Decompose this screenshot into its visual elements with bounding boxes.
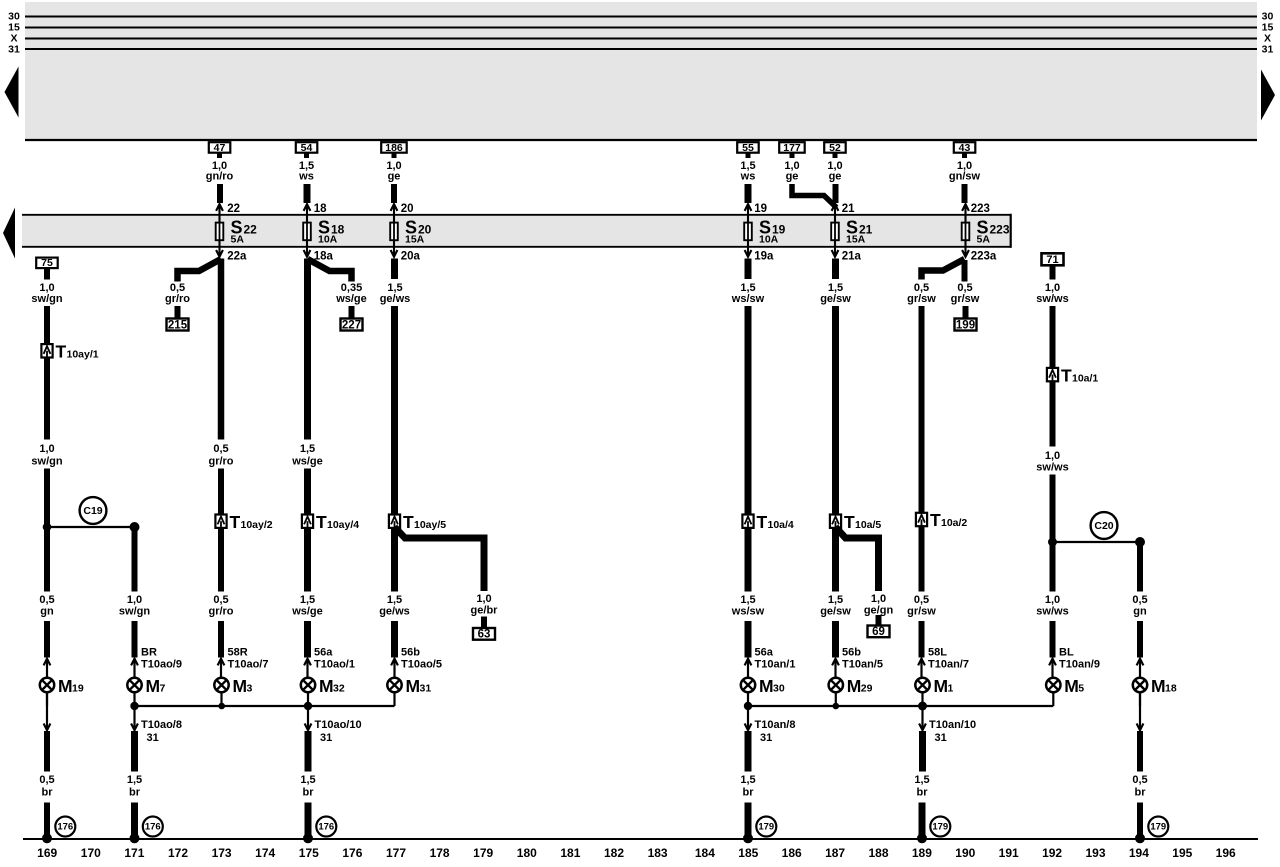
svg-text:10a/5: 10a/5 (855, 519, 881, 531)
svg-text:31: 31 (760, 732, 772, 744)
svg-text:10ay/5: 10ay/5 (414, 519, 446, 531)
svg-text:188: 188 (868, 846, 888, 860)
svg-text:56b: 56b (401, 647, 420, 659)
svg-text:gr/sw: gr/sw (951, 293, 980, 305)
svg-text:br: br (129, 786, 141, 798)
svg-text:1,5: 1,5 (740, 282, 755, 294)
svg-text:T: T (1061, 365, 1072, 385)
svg-text:196: 196 (1216, 846, 1236, 860)
svg-text:10a/2: 10a/2 (941, 517, 967, 529)
svg-text:ge/sw: ge/sw (820, 605, 851, 617)
svg-text:ge: ge (829, 171, 842, 183)
svg-text:M: M (233, 676, 248, 696)
svg-text:T: T (930, 510, 941, 530)
svg-text:br: br (743, 786, 755, 798)
svg-text:176: 176 (342, 846, 362, 860)
svg-text:1,5: 1,5 (300, 774, 315, 786)
svg-text:184: 184 (695, 846, 715, 860)
svg-text:M: M (759, 676, 774, 696)
svg-text:47: 47 (214, 142, 226, 154)
svg-text:0,5: 0,5 (1132, 594, 1147, 606)
svg-text:189: 189 (912, 846, 932, 860)
svg-text:0,5: 0,5 (39, 594, 54, 606)
svg-text:3: 3 (247, 683, 253, 695)
svg-text:T10ao/7: T10ao/7 (228, 659, 269, 671)
svg-text:1,0: 1,0 (127, 594, 142, 606)
svg-text:br: br (1135, 786, 1147, 798)
svg-text:T: T (757, 512, 768, 532)
svg-text:C19: C19 (83, 505, 102, 517)
svg-text:55: 55 (742, 142, 754, 154)
svg-text:ge: ge (786, 171, 799, 183)
svg-text:31: 31 (935, 732, 947, 744)
svg-text:1,5: 1,5 (914, 774, 929, 786)
svg-text:175: 175 (299, 846, 319, 860)
svg-text:1,5: 1,5 (387, 282, 402, 294)
svg-text:1,0: 1,0 (871, 593, 886, 605)
svg-text:185: 185 (738, 846, 758, 860)
svg-text:1,5: 1,5 (300, 594, 315, 606)
svg-text:56a: 56a (314, 647, 333, 659)
svg-text:179: 179 (932, 822, 948, 833)
svg-text:gn/ro: gn/ro (206, 171, 234, 183)
svg-text:20: 20 (401, 203, 414, 215)
svg-text:227: 227 (342, 319, 361, 331)
svg-text:223a: 223a (971, 251, 997, 263)
svg-text:10A: 10A (318, 234, 338, 246)
svg-text:T10an/7: T10an/7 (928, 659, 969, 671)
svg-text:223: 223 (990, 222, 1010, 236)
svg-text:215: 215 (168, 319, 188, 331)
svg-text:5A: 5A (977, 234, 991, 246)
svg-text:T10ao/1: T10ao/1 (314, 659, 355, 671)
svg-text:194: 194 (1129, 846, 1149, 860)
svg-text:31: 31 (1262, 44, 1274, 56)
svg-text:gn/sw: gn/sw (949, 171, 981, 183)
svg-text:31: 31 (147, 732, 159, 744)
svg-text:ge/ws: ge/ws (379, 605, 410, 617)
svg-text:ge/ws: ge/ws (380, 293, 411, 305)
svg-text:gr/ro: gr/ro (208, 456, 233, 468)
svg-text:179: 179 (1150, 822, 1166, 833)
svg-text:ws: ws (298, 171, 314, 183)
svg-text:192: 192 (1042, 846, 1062, 860)
svg-text:1,0: 1,0 (476, 593, 491, 605)
svg-text:5: 5 (1078, 683, 1084, 695)
svg-text:M: M (1064, 676, 1079, 696)
svg-text:T10ao/9: T10ao/9 (141, 659, 182, 671)
svg-text:T10an/9: T10an/9 (1059, 659, 1100, 671)
svg-text:T: T (316, 512, 327, 532)
svg-text:gn: gn (1133, 605, 1147, 617)
svg-text:ws/sw: ws/sw (731, 293, 765, 305)
svg-text:10A: 10A (759, 234, 779, 246)
svg-text:M: M (146, 676, 161, 696)
svg-text:171: 171 (124, 846, 144, 860)
svg-text:177: 177 (386, 846, 406, 860)
svg-text:18: 18 (314, 203, 327, 215)
svg-text:0,5: 0,5 (914, 282, 929, 294)
svg-text:43: 43 (959, 142, 971, 154)
svg-text:gr/ro: gr/ro (208, 605, 233, 617)
svg-text:31: 31 (420, 683, 432, 695)
svg-text:1,5: 1,5 (740, 594, 755, 606)
svg-text:10ay/1: 10ay/1 (67, 349, 99, 361)
svg-text:0,5: 0,5 (39, 774, 54, 786)
svg-text:T: T (844, 512, 855, 532)
svg-text:0,5: 0,5 (213, 594, 228, 606)
svg-text:169: 169 (37, 846, 57, 860)
svg-text:10a/1: 10a/1 (1072, 372, 1098, 384)
svg-text:21: 21 (842, 203, 855, 215)
svg-text:1,0: 1,0 (39, 282, 54, 294)
svg-text:193: 193 (1085, 846, 1105, 860)
svg-text:0,5: 0,5 (914, 594, 929, 606)
svg-text:31: 31 (320, 732, 332, 744)
svg-text:ws/sw: ws/sw (731, 605, 765, 617)
svg-text:T10an/10: T10an/10 (929, 719, 976, 731)
svg-text:7: 7 (160, 683, 166, 695)
svg-text:br: br (42, 786, 54, 798)
svg-text:69: 69 (872, 626, 885, 638)
svg-text:173: 173 (212, 846, 232, 860)
svg-text:54: 54 (301, 142, 313, 154)
svg-text:ws/ge: ws/ge (291, 605, 323, 617)
svg-text:0,35: 0,35 (341, 282, 362, 294)
svg-text:15A: 15A (846, 234, 866, 246)
svg-text:ge/gn: ge/gn (864, 604, 894, 616)
svg-text:15A: 15A (405, 234, 425, 246)
svg-text:1,0: 1,0 (1045, 594, 1060, 606)
svg-text:M: M (934, 676, 949, 696)
svg-text:T: T (56, 342, 67, 362)
svg-text:179: 179 (473, 846, 493, 860)
svg-text:ge/br: ge/br (471, 604, 499, 616)
svg-text:sw/gn: sw/gn (31, 456, 62, 468)
svg-text:1,5: 1,5 (828, 282, 843, 294)
svg-text:T10an/1: T10an/1 (755, 659, 796, 671)
svg-text:179: 179 (758, 822, 774, 833)
svg-text:75: 75 (41, 257, 53, 269)
svg-text:T: T (230, 512, 241, 532)
svg-text:187: 187 (825, 846, 845, 860)
svg-text:19a: 19a (754, 251, 774, 263)
svg-text:sw/gn: sw/gn (31, 293, 62, 305)
svg-text:ws: ws (740, 171, 756, 183)
svg-text:22a: 22a (227, 251, 247, 263)
svg-text:10ay/2: 10ay/2 (241, 519, 273, 531)
svg-text:190: 190 (955, 846, 975, 860)
svg-text:0,5: 0,5 (170, 282, 185, 294)
svg-text:gr/sw: gr/sw (907, 293, 936, 305)
svg-text:56a: 56a (755, 647, 774, 659)
svg-text:1,5: 1,5 (127, 774, 142, 786)
svg-text:58R: 58R (228, 647, 248, 659)
svg-text:sw/ws: sw/ws (1036, 293, 1068, 305)
svg-text:19: 19 (754, 203, 767, 215)
svg-text:183: 183 (648, 846, 668, 860)
svg-text:176: 176 (57, 822, 73, 833)
svg-text:52: 52 (829, 142, 841, 154)
svg-text:30: 30 (773, 683, 785, 695)
svg-text:M: M (1151, 676, 1166, 696)
svg-text:1,0: 1,0 (1045, 450, 1060, 462)
svg-text:gr/ro: gr/ro (165, 293, 190, 305)
svg-text:63: 63 (478, 629, 491, 641)
svg-text:gr/sw: gr/sw (907, 605, 936, 617)
svg-text:22: 22 (227, 203, 240, 215)
svg-text:170: 170 (81, 846, 101, 860)
svg-text:181: 181 (560, 846, 580, 860)
svg-text:172: 172 (168, 846, 188, 860)
svg-text:56b: 56b (842, 647, 861, 659)
svg-text:ws/ge: ws/ge (291, 456, 323, 468)
svg-text:176: 176 (318, 822, 334, 833)
svg-text:195: 195 (1172, 846, 1192, 860)
svg-text:T: T (403, 512, 414, 532)
svg-text:M: M (847, 676, 862, 696)
svg-text:32: 32 (333, 683, 345, 695)
svg-text:18: 18 (1165, 683, 1177, 695)
svg-text:199: 199 (956, 319, 975, 331)
svg-text:180: 180 (517, 846, 537, 860)
svg-text:ws/ge: ws/ge (335, 293, 367, 305)
svg-text:10a/4: 10a/4 (768, 519, 794, 531)
svg-text:223: 223 (971, 203, 990, 215)
svg-text:186: 186 (385, 142, 403, 154)
svg-text:BR: BR (141, 647, 157, 659)
svg-text:0,5: 0,5 (1132, 774, 1147, 786)
svg-text:1,5: 1,5 (300, 443, 315, 455)
svg-text:19: 19 (72, 683, 84, 695)
svg-text:20a: 20a (401, 251, 421, 263)
svg-text:BL: BL (1059, 647, 1074, 659)
svg-text:1: 1 (948, 683, 954, 695)
svg-text:ge/sw: ge/sw (820, 293, 851, 305)
svg-text:29: 29 (861, 683, 873, 695)
svg-text:58L: 58L (928, 647, 947, 659)
svg-text:191: 191 (999, 846, 1019, 860)
svg-text:T10ao/8: T10ao/8 (141, 719, 182, 731)
svg-text:22: 22 (244, 222, 258, 236)
svg-text:gn: gn (40, 605, 54, 617)
svg-text:1,5: 1,5 (387, 594, 402, 606)
svg-text:5A: 5A (231, 234, 245, 246)
svg-text:182: 182 (604, 846, 624, 860)
svg-text:177: 177 (783, 142, 801, 154)
svg-text:sw/ws: sw/ws (1036, 461, 1068, 473)
svg-text:176: 176 (145, 822, 161, 833)
svg-text:10ay/4: 10ay/4 (327, 519, 359, 531)
svg-text:M: M (58, 676, 73, 696)
svg-text:178: 178 (430, 846, 450, 860)
svg-text:1,5: 1,5 (828, 594, 843, 606)
svg-text:0,5: 0,5 (957, 282, 972, 294)
svg-text:C20: C20 (1094, 520, 1113, 532)
svg-text:186: 186 (782, 846, 802, 860)
svg-text:1,5: 1,5 (740, 774, 755, 786)
svg-text:174: 174 (255, 846, 275, 860)
svg-text:21a: 21a (842, 251, 862, 263)
svg-text:T10ao/10: T10ao/10 (315, 719, 362, 731)
svg-text:1,0: 1,0 (1045, 282, 1060, 294)
svg-text:sw/ws: sw/ws (1036, 605, 1068, 617)
svg-text:M: M (406, 676, 421, 696)
svg-text:0,5: 0,5 (213, 443, 228, 455)
svg-text:sw/gn: sw/gn (119, 605, 150, 617)
svg-text:31: 31 (8, 44, 20, 56)
svg-text:M: M (319, 676, 334, 696)
svg-text:br: br (303, 786, 315, 798)
svg-text:ge: ge (388, 171, 401, 183)
svg-text:T10ao/5: T10ao/5 (401, 659, 442, 671)
svg-text:T10an/5: T10an/5 (842, 659, 883, 671)
svg-text:71: 71 (1046, 254, 1058, 266)
svg-text:1,0: 1,0 (39, 443, 54, 455)
svg-text:T10an/8: T10an/8 (755, 719, 796, 731)
svg-text:br: br (917, 786, 929, 798)
